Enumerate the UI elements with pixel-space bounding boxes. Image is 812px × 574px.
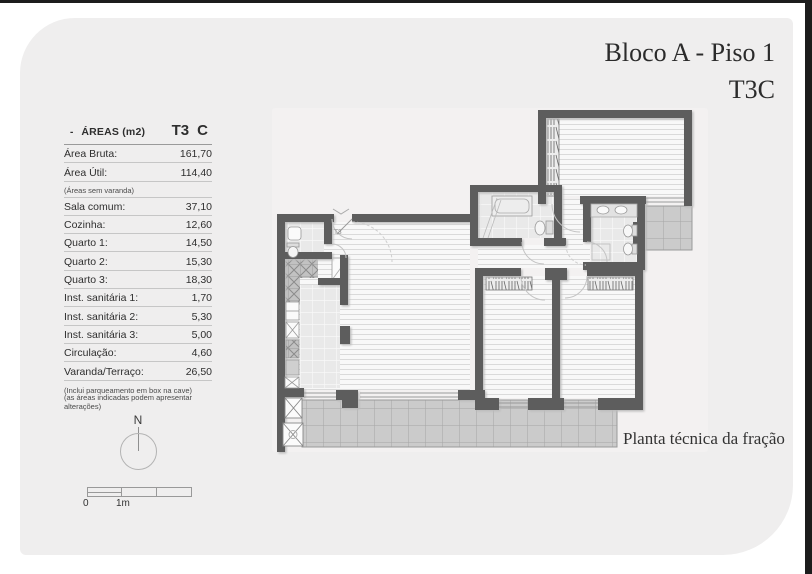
sink [288,227,301,240]
kitchen-counter-side [285,278,300,304]
oven [286,360,299,375]
row-label: Varanda/Terraço: [64,366,144,378]
north-indicator: N [105,413,171,473]
row-label: Circulação: [64,347,117,359]
scale-segment [88,488,122,496]
fraction-title: T3C [605,75,775,105]
table-note: (Áreas sem varanda) [64,182,212,198]
row-label: Quarto 3: [64,274,108,286]
row-value: 37,10 [186,201,212,213]
row-value: 1,70 [192,292,212,304]
scale-bar-graphic [87,487,192,497]
bidet [624,243,633,255]
areas-table: - ÁREAS (m2) T3 C Área Bruta:161,70 Área… [64,122,212,413]
row-label: Quarto 1: [64,237,108,249]
table-row: Quarto 2:15,30 [64,252,212,270]
row-label: Inst. sanitária 3: [64,329,138,341]
plan-caption: Planta técnica da fração [623,429,785,449]
table-row: Inst. sanitária 3:5,00 [64,326,212,344]
north-label: N [105,413,171,427]
bedroom1-floor [483,276,552,398]
row-value: 161,70 [180,148,212,160]
scale-zero-label: 0 [83,498,89,509]
frame-right-border [805,0,812,574]
header-bullet: - [70,127,73,138]
row-value: 4,60 [192,347,212,359]
row-value: 114,40 [181,167,212,179]
scale-segment [122,488,156,496]
block-title: Bloco A - Piso 1 [605,38,775,68]
compass-circle [120,433,157,470]
counter-block [286,340,299,358]
entry-label: T3 [334,229,342,236]
table-row: Quarto 3:18,30 [64,271,212,289]
bedroom2-floor [560,276,635,398]
header-title: ÁREAS (m2) [81,126,145,138]
toilet [288,247,298,258]
table-row: Quarto 1:14,50 [64,234,212,252]
sink [615,206,627,214]
table-row: Cozinha:12,60 [64,216,212,234]
kitchen-floor [300,285,340,388]
bedroom1-wardrobe [486,277,532,290]
bedroom2-wardrobe [588,277,633,290]
table-row: Inst. sanitária 2:5,30 [64,307,212,325]
floor-plan: T3 [268,104,712,456]
row-label: Sala comum: [64,201,125,213]
toilet [624,225,633,237]
toilet-tank [546,221,553,234]
kitchen-appliances [285,302,299,388]
table-row: Área Bruta:161,70 [64,145,212,163]
header-typology: T3 [172,122,190,139]
frame-top-border [0,0,806,3]
table-row: Circulação:4,60 [64,344,212,362]
row-label: Inst. sanitária 1: [64,292,138,304]
table-row: Varanda/Terraço:26,50 [64,362,212,380]
row-value: 15,30 [186,256,212,268]
table-row: Inst. sanitária 1:1,70 [64,289,212,307]
sink [597,206,609,214]
row-value: 18,30 [186,274,212,286]
bedroom3-floor [546,118,684,196]
row-value: 5,30 [192,311,212,323]
table-footnote: (as áreas indicadas podem apresentar alt… [64,397,212,413]
hall-floor [478,245,590,268]
header-fraction-letter: C [197,122,208,139]
balcony-floor [642,206,692,250]
row-value: 5,00 [192,329,212,341]
table-row: Sala comum:37,10 [64,198,212,216]
toilet [535,221,545,235]
row-label: Cozinha: [64,219,105,231]
row-value: 12,60 [186,219,212,231]
row-value: 14,50 [186,237,212,249]
sheet-titles: Bloco A - Piso 1 T3C [605,38,775,105]
row-value: 26,50 [186,366,212,378]
scale-bar: 0 1m [83,486,203,512]
kitchen-counter [285,259,318,278]
row-label: Inst. sanitária 2: [64,311,138,323]
table-row: Área Útil:114,40 [64,163,212,181]
scale-one-meter-label: 1m [116,498,130,509]
areas-table-header: - ÁREAS (m2) T3 C [64,122,212,145]
row-label: Quarto 2: [64,256,108,268]
row-label: Área Útil: [64,167,107,179]
row-label: Área Bruta: [64,148,117,160]
scale-segment [157,488,191,496]
page: Bloco A - Piso 1 T3C - ÁREAS (m2) T3 C Á… [0,0,812,574]
bedroom3-wardrobe [546,119,559,196]
